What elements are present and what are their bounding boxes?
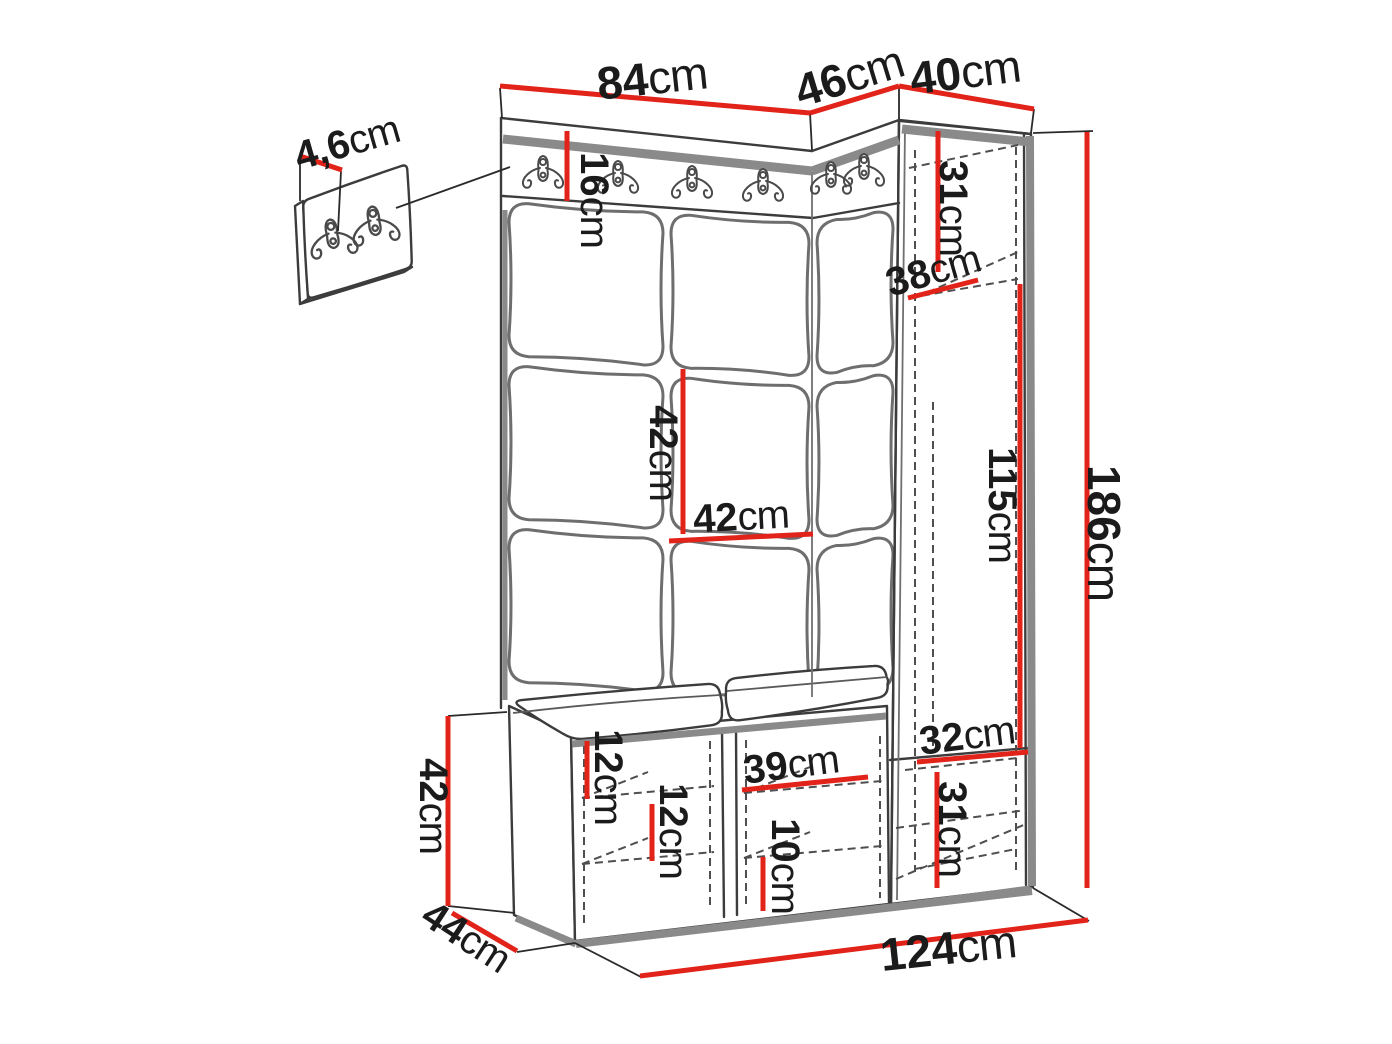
extension-line xyxy=(500,88,502,118)
dim-label-total-width: 124cm xyxy=(878,915,1019,981)
dim-label-bench-left-lower-shelf-height: 12cm xyxy=(651,783,695,879)
extension-line xyxy=(448,712,507,716)
extension-line xyxy=(396,167,510,208)
hallway-unit-drawing: 4,6cm 84cm 46cm 40cm 16cm 31cm 38cm 42cm… xyxy=(0,0,1392,1044)
extension-line xyxy=(1033,888,1089,921)
dim-label-cabinet-inner-height: 115cm xyxy=(980,447,1024,563)
upholstered-panel-tile xyxy=(817,375,893,536)
shadow-edge xyxy=(1030,136,1032,886)
upholstered-panel-tile xyxy=(817,212,893,373)
upholstered-panel-tile xyxy=(509,530,663,691)
detail-inset-panel xyxy=(295,166,412,304)
extension-line xyxy=(810,113,812,150)
dim-label-top-front-width: 84cm xyxy=(594,46,709,109)
coat-hook-icon xyxy=(523,156,563,188)
dim-label-hook-rail-height: 16cm xyxy=(572,152,616,248)
extension-line xyxy=(575,943,641,977)
dim-label-bench-middle-shelf-height: 10cm xyxy=(763,818,807,914)
shadow-edge xyxy=(503,139,812,171)
extension-line xyxy=(517,943,575,952)
dim-label-cabinet-bottom-compartment-height: 31cm xyxy=(930,781,974,877)
furniture-dimension-diagram: 4,6cm 84cm 46cm 40cm 16cm 31cm 38cm 42cm… xyxy=(0,0,1392,1044)
bench-side-panel xyxy=(509,706,575,941)
dim-label-cabinet-width: 40cm xyxy=(907,39,1023,104)
dim-label-panel-tile-width: 42cm xyxy=(692,493,790,542)
dim-label-panel-tile-height: 42cm xyxy=(641,405,685,501)
dim-label-total-height: 186cm xyxy=(1078,465,1130,601)
shadow-edge xyxy=(812,140,899,171)
dim-label-bench-depth: 44cm xyxy=(414,892,518,981)
extension-line xyxy=(1033,131,1093,133)
dim-label-detail-width: 4,6cm xyxy=(290,107,405,179)
coat-hook-icon xyxy=(743,169,783,201)
dim-label-bench-left-shelf-height: 12cm xyxy=(586,729,630,825)
bench-divider xyxy=(736,729,737,915)
dim-label-bench-height: 42cm xyxy=(411,758,455,854)
coat-hook-icon xyxy=(672,166,712,198)
upholstered-panel-grid xyxy=(509,204,893,702)
extension-line xyxy=(1031,109,1034,133)
upholstered-panel-tile xyxy=(671,215,809,375)
dim-label-top-corner-width: 46cm xyxy=(789,35,910,117)
upholstered-panel-tile xyxy=(509,367,663,528)
